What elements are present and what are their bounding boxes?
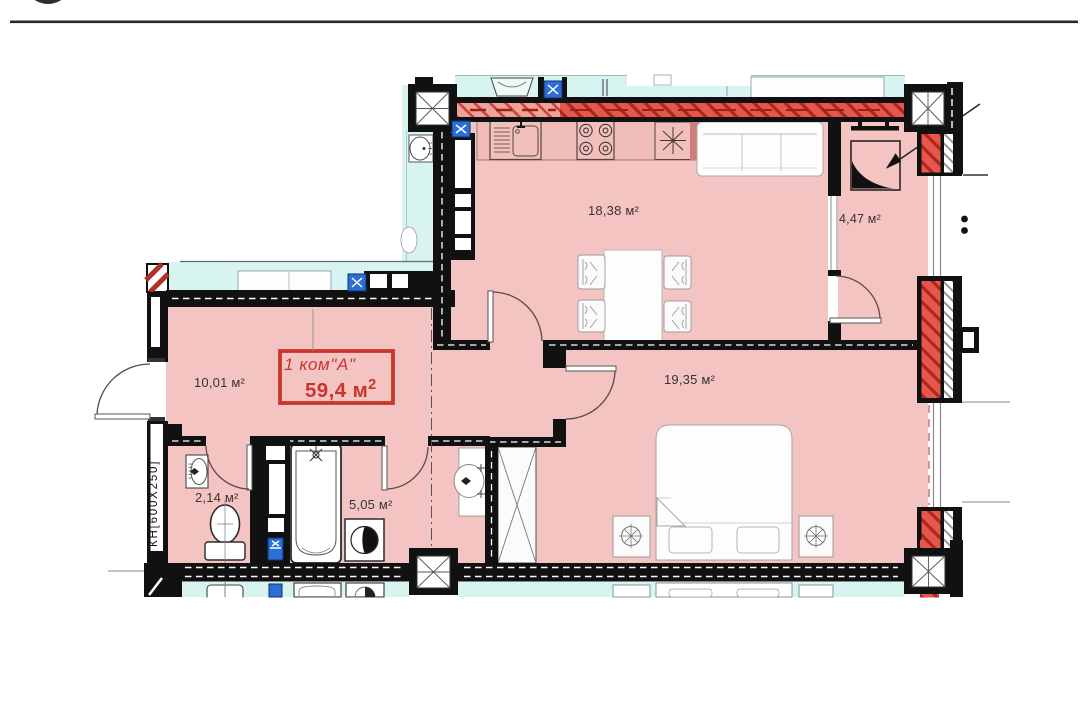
- svg-text:19,35 м²: 19,35 м²: [664, 372, 715, 387]
- svg-text:10,01 м²: 10,01 м²: [194, 375, 245, 390]
- svg-text:5,05 м²: 5,05 м²: [349, 497, 393, 512]
- svg-text:18,38 м²: 18,38 м²: [588, 203, 639, 218]
- svg-text:2,14 м²: 2,14 м²: [195, 490, 239, 505]
- svg-text:КН[600X250]: КН[600X250]: [148, 460, 160, 547]
- svg-text:59,4 м2: 59,4 м2: [305, 377, 377, 402]
- svg-text:4,47 м²: 4,47 м²: [839, 212, 881, 226]
- svg-text:1 ком"А": 1 ком"А": [284, 355, 356, 374]
